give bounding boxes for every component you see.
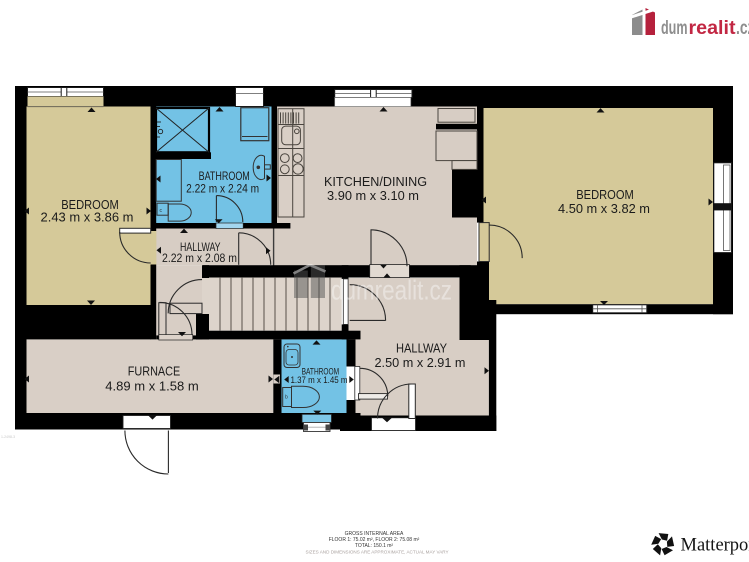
svg-text:SIZES AND DIMENSIONS ARE APPRO: SIZES AND DIMENSIONS ARE APPROXIMATE, AC… — [305, 549, 448, 554]
svg-text:b: b — [285, 395, 288, 401]
svg-text:FURNACE: FURNACE — [128, 364, 181, 379]
svg-text:KITCHEN/DINING: KITCHEN/DINING — [324, 174, 427, 189]
svg-text:4.50 m x 3.82 m: 4.50 m x 3.82 m — [558, 201, 650, 216]
svg-text:2.43 m x 3.86 m: 2.43 m x 3.86 m — [41, 210, 134, 225]
svg-text:dum: dum — [661, 18, 688, 39]
svg-text:1-2498-3: 1-2498-3 — [1, 435, 15, 439]
svg-text:.cz: .cz — [736, 18, 749, 39]
svg-text:BEDROOM: BEDROOM — [576, 187, 634, 202]
svg-text:GROSS INTERNAL AREA: GROSS INTERNAL AREA — [345, 531, 404, 537]
svg-text:4.89 m x 1.58 m: 4.89 m x 1.58 m — [105, 378, 199, 393]
svg-text:2.22 m x 2.08 m: 2.22 m x 2.08 m — [162, 251, 237, 265]
svg-text:TOTAL: 150.1 m²: TOTAL: 150.1 m² — [355, 543, 393, 549]
svg-text:HALLWAY: HALLWAY — [396, 340, 447, 355]
svg-text:1.37 m x 1.45 m: 1.37 m x 1.45 m — [291, 375, 348, 385]
svg-text:realit: realit — [689, 18, 737, 39]
svg-text:Matterport: Matterport — [681, 536, 749, 556]
svg-text:2.50 m x 2.91 m: 2.50 m x 2.91 m — [375, 355, 466, 370]
svg-text:3.90 m x 3.10 m: 3.90 m x 3.10 m — [327, 188, 419, 203]
svg-text:2.22 m x 2.24 m: 2.22 m x 2.24 m — [186, 182, 259, 196]
svg-text:dumrealit.cz: dumrealit.cz — [331, 275, 452, 306]
